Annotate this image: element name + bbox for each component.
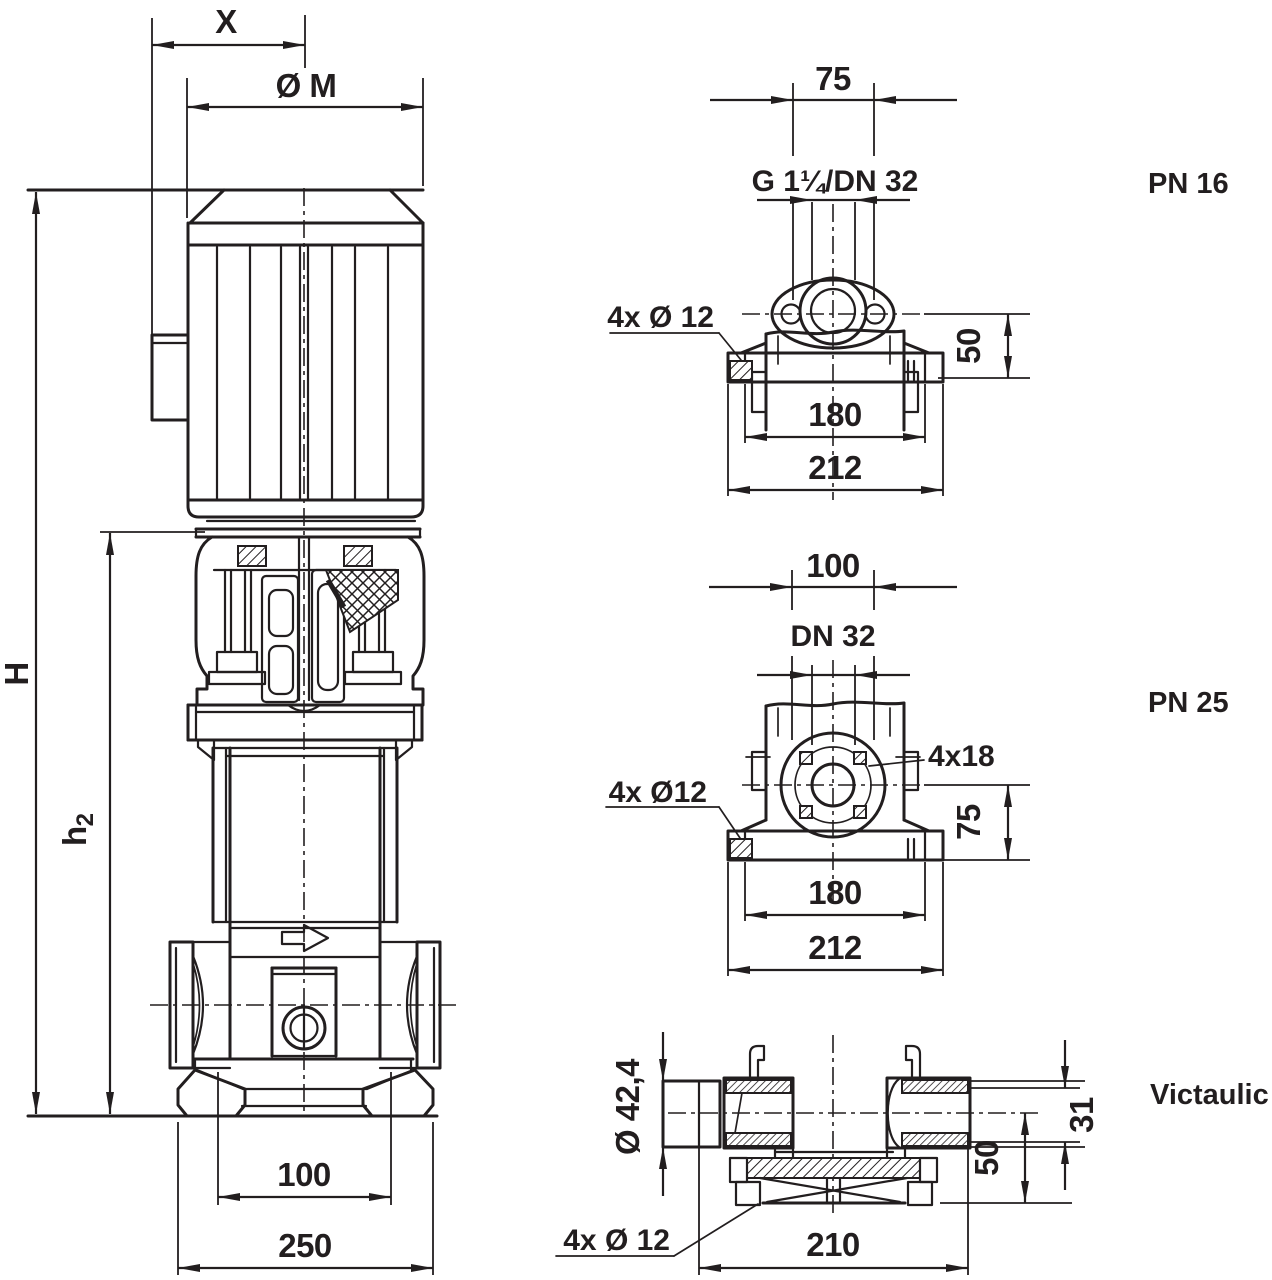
coil-hatch-left <box>238 546 266 566</box>
victaulic-dim-50-label: 50 <box>968 1140 1005 1176</box>
pn25-dim-100: 100 <box>709 547 957 610</box>
pn25-bolt-hole <box>800 752 812 764</box>
pn25-dim-212-label: 212 <box>808 929 862 966</box>
pn16-title: PN 16 <box>1148 168 1229 200</box>
pn25-base-bolt-hatch <box>730 839 752 858</box>
pn25-base <box>728 820 943 860</box>
dim-m-label: Ø M <box>276 67 337 104</box>
pn25-title: PN 25 <box>1148 687 1229 719</box>
pn25-dim-180: 180 <box>745 862 925 921</box>
drawing-canvas: X Ø M H h2 100 250 75 <box>0 0 1272 1280</box>
pn16-dim-180: 180 <box>745 384 925 443</box>
pn16-base-bolt-hatch <box>730 361 752 380</box>
victaulic-dim-50: 50 <box>940 1113 1072 1203</box>
pn16-dim-75: 75 <box>710 60 957 158</box>
pn16-dim-180-label: 180 <box>808 396 862 433</box>
coil-hatch-right <box>344 546 372 566</box>
pn25-holes-label: 4x Ø12 <box>609 776 707 809</box>
pn25-dim-75: 75 <box>924 785 1030 860</box>
pn25-flange-holes-callout: 4x18 <box>869 740 995 773</box>
motor-cap <box>28 190 423 245</box>
victaulic-groove-hatch <box>902 1080 968 1093</box>
pump-side-view: X Ø M H h2 100 250 <box>0 3 458 1275</box>
pn25-bolt-hole <box>854 752 866 764</box>
victaulic-holes-label: 4x Ø 12 <box>563 1224 670 1257</box>
pump-base <box>28 1059 437 1116</box>
pn25-bolt-hole <box>854 806 866 818</box>
dim-diameter-m: Ø M <box>187 67 423 218</box>
victaulic-left-pipe <box>663 1046 793 1148</box>
victaulic-groove-hatch <box>726 1080 791 1093</box>
victaulic-clip <box>750 1046 764 1078</box>
motor-body <box>188 223 423 517</box>
pn25-bolt-hole <box>800 806 812 818</box>
pump-dimension-drawing: X Ø M H h2 100 250 75 <box>0 0 1272 1280</box>
victaulic-dim-od: Ø 42,4 <box>609 1032 663 1196</box>
pn16-holes-label: 4x Ø 12 <box>607 301 714 334</box>
victaulic-groove-hatch <box>902 1133 968 1146</box>
pn16-dim-50: 50 <box>924 314 1030 378</box>
lantern-section <box>196 521 424 711</box>
victaulic-title: Victaulic <box>1150 1079 1269 1111</box>
victaulic-dim-31-label: 31 <box>1063 1097 1100 1133</box>
pn25-flange-holes-label: 4x18 <box>928 740 995 773</box>
lantern-hatch-web <box>326 570 398 632</box>
pn16-dim-75-label: 75 <box>815 60 851 97</box>
victaulic-dim-31: 31 <box>1063 1040 1100 1190</box>
pn25-port-label: DN 32 <box>790 620 875 653</box>
victaulic-dim-210-label: 210 <box>806 1226 860 1263</box>
dim-100-label: 100 <box>277 1156 331 1193</box>
pn25-dim-75-label: 75 <box>950 804 987 840</box>
pn16-port-label: G 1¼/DN 32 <box>752 165 919 198</box>
terminal-box <box>152 335 188 420</box>
pn25-holes-callout: 4x Ø12 <box>606 776 740 838</box>
dim-x-label: X <box>215 3 237 40</box>
pn25-dim-180-label: 180 <box>808 874 862 911</box>
pn16-holes-callout: 4x Ø 12 <box>607 301 741 360</box>
victaulic-view: Ø 42,4 4x Ø 12 210 50 31 Victaulic <box>556 1032 1269 1275</box>
pn16-dim-212-label: 212 <box>808 449 862 486</box>
dim-h-label: H <box>0 662 35 685</box>
victaulic-right-pipe <box>887 1046 1085 1148</box>
dim-h2-main: h <box>56 826 93 846</box>
pn25-dim-100-label: 100 <box>806 547 860 584</box>
victaulic-clip <box>906 1046 920 1078</box>
dim-h: H <box>0 192 36 1114</box>
victaulic-clamp-hatch <box>747 1158 920 1178</box>
pn25-flange-view: 100 DN 32 <box>606 547 1229 976</box>
victaulic-holes-callout: 4x Ø 12 <box>556 1204 758 1257</box>
victaulic-groove-hatch <box>726 1133 791 1146</box>
dim-250: 250 <box>178 1122 433 1275</box>
lantern-flange <box>188 705 422 760</box>
pn16-flange-view: 75 G 1¼/DN 32 <box>607 60 1228 500</box>
dim-h2-label: h2 <box>56 813 99 846</box>
pn16-dim-50-label: 50 <box>950 328 987 364</box>
dim-h2: h2 <box>56 532 205 1114</box>
dim-h2-sub: 2 <box>72 813 99 826</box>
victaulic-od-label: Ø 42,4 <box>609 1058 646 1155</box>
dim-250-label: 250 <box>278 1227 332 1264</box>
